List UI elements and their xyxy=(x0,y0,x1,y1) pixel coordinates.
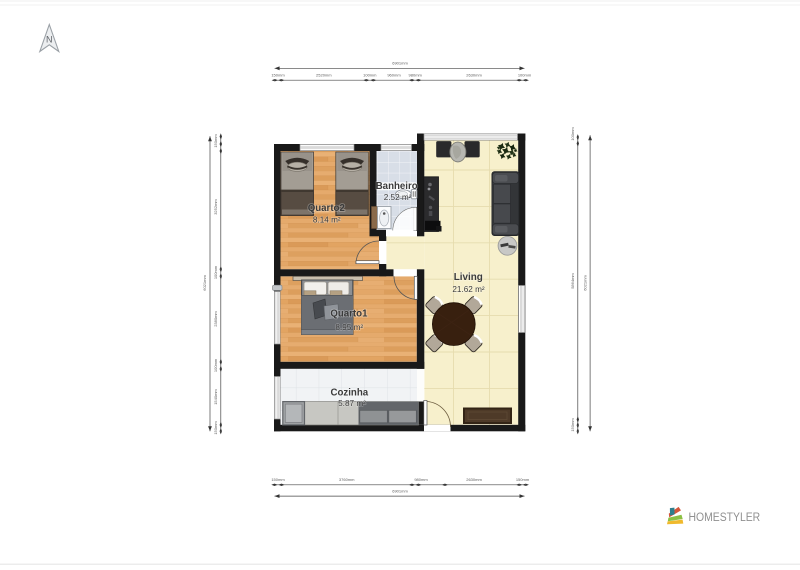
svg-text:100mm: 100mm xyxy=(363,73,377,78)
svg-text:6021mm: 6021mm xyxy=(202,275,207,291)
svg-text:6021mm: 6021mm xyxy=(582,275,587,291)
svg-text:150mm: 150mm xyxy=(213,134,218,148)
svg-text:8.95 m²: 8.95 m² xyxy=(335,323,363,332)
svg-text:960mm: 960mm xyxy=(387,73,401,78)
svg-text:21.62 m²: 21.62 m² xyxy=(452,285,485,294)
svg-text:6901mm: 6901mm xyxy=(392,489,408,494)
svg-text:Cozinha: Cozinha xyxy=(330,387,368,398)
svg-text:150mm: 150mm xyxy=(570,418,575,432)
svg-text:2630mm: 2630mm xyxy=(466,73,482,78)
svg-text:1540mm: 1540mm xyxy=(213,389,218,405)
svg-text:2380mm: 2380mm xyxy=(213,311,218,327)
svg-text:HOMESTYLER: HOMESTYLER xyxy=(689,511,761,524)
svg-text:2.52 m²: 2.52 m² xyxy=(384,193,412,202)
svg-text:2520mm: 2520mm xyxy=(316,73,332,78)
svg-text:Quarto2: Quarto2 xyxy=(308,203,345,214)
svg-text:980mm: 980mm xyxy=(414,477,428,482)
svg-text:Banheiro: Banheiro xyxy=(376,181,418,192)
svg-text:150mm: 150mm xyxy=(271,477,285,482)
svg-text:N: N xyxy=(46,35,53,45)
svg-text:980mm: 980mm xyxy=(409,73,423,78)
svg-text:150mm: 150mm xyxy=(213,421,218,435)
svg-text:8.14 m²: 8.14 m² xyxy=(313,216,341,225)
svg-text:150mm: 150mm xyxy=(271,73,285,78)
svg-text:5864mm: 5864mm xyxy=(570,273,575,289)
svg-text:6901mm: 6901mm xyxy=(392,61,408,66)
svg-text:Living: Living xyxy=(454,272,483,283)
svg-text:100mm: 100mm xyxy=(570,127,575,141)
svg-text:150mm: 150mm xyxy=(516,477,530,482)
svg-text:100mm: 100mm xyxy=(518,73,532,78)
svg-text:2630mm: 2630mm xyxy=(466,477,482,482)
svg-text:3760mm: 3760mm xyxy=(339,477,355,482)
svg-text:5.87 m²: 5.87 m² xyxy=(338,399,366,408)
svg-text:100mm: 100mm xyxy=(213,358,218,372)
svg-text:100mm: 100mm xyxy=(213,265,218,279)
svg-text:Quarto1: Quarto1 xyxy=(330,308,368,319)
svg-text:3252mm: 3252mm xyxy=(213,199,218,215)
